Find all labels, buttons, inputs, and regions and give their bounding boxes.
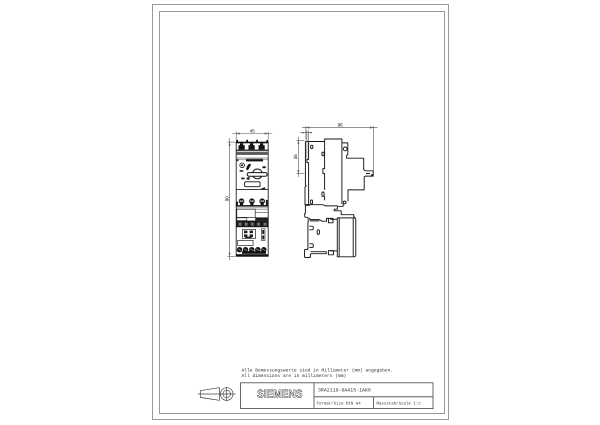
svg-text:Alle Bemessungswerte sind in M: Alle Bemessungswerte sind in Millimeter …: [242, 367, 394, 373]
svg-text:Massstab/Scale 1:2: Massstab/Scale 1:2: [377, 402, 422, 407]
svg-text:96: 96: [338, 122, 344, 127]
svg-text:45: 45: [250, 128, 256, 133]
svg-text:90: 90: [224, 196, 229, 202]
svg-text:3RA2110-0AA15-1AK6: 3RA2110-0AA15-1AK6: [318, 388, 371, 394]
svg-text:SIEMENS: SIEMENS: [257, 388, 303, 400]
svg-text:All dimensions are in millimet: All dimensions are in millimeters (mm): [242, 373, 347, 379]
svg-text:Format/Size DIN A4: Format/Size DIN A4: [317, 402, 362, 407]
svg-text:35: 35: [293, 154, 298, 160]
